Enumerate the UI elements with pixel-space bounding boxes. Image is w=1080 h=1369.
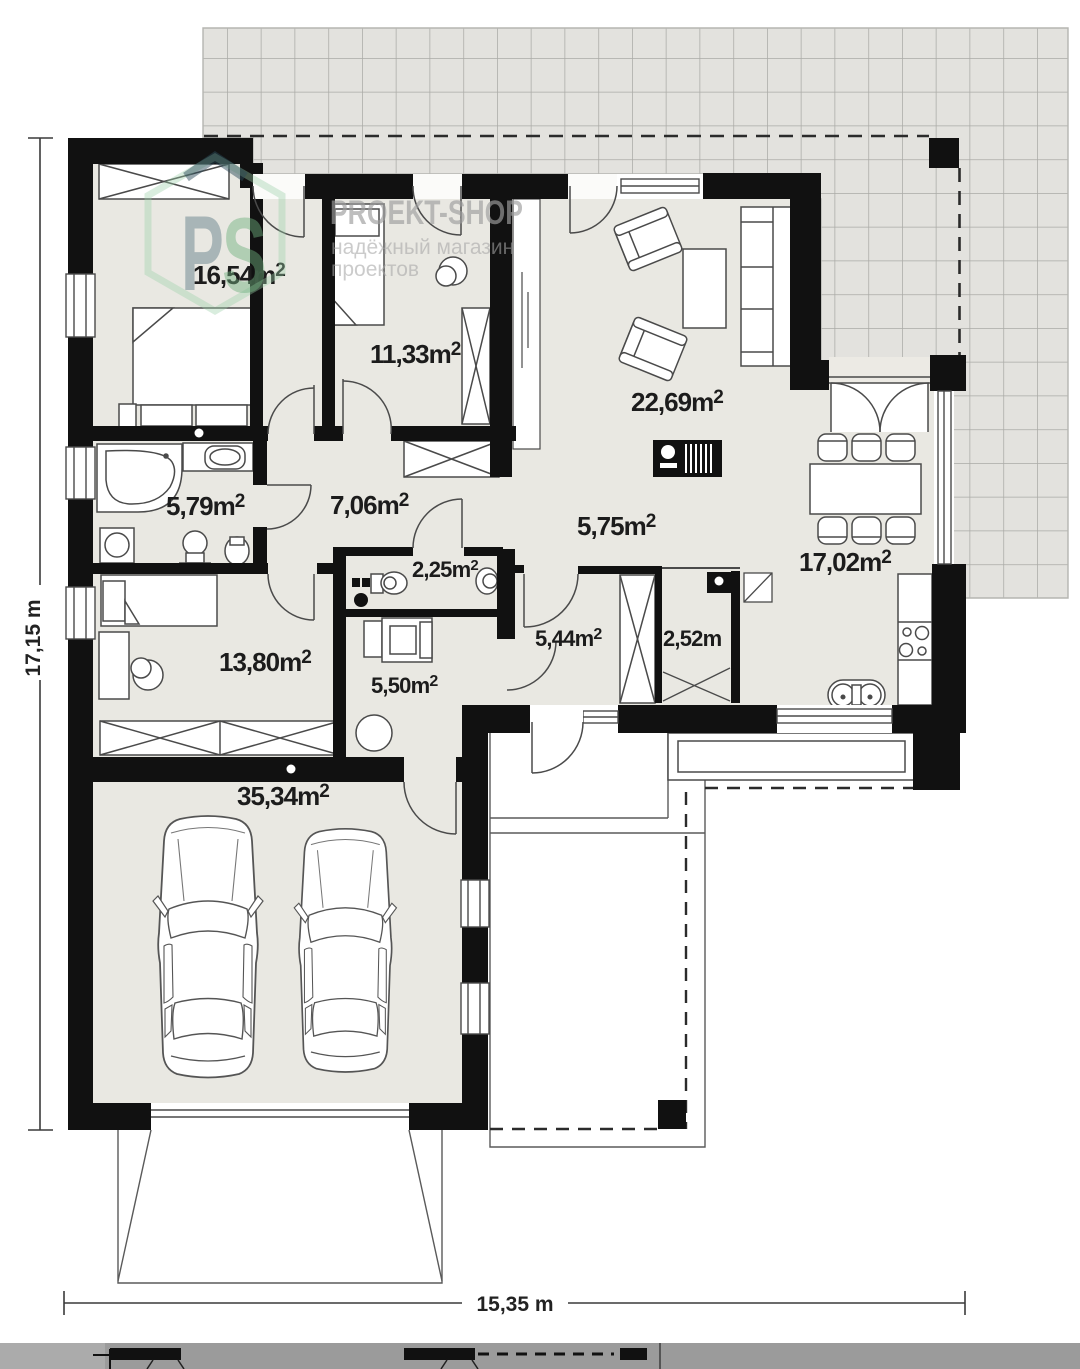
svg-text:S: S xyxy=(222,195,267,315)
svg-text:2,25m2: 2,25m2 xyxy=(412,557,478,582)
svg-text:проектов: проектов xyxy=(331,258,419,281)
svg-text:2,52m: 2,52m xyxy=(663,626,722,651)
svg-text:15,35 m: 15,35 m xyxy=(476,1293,553,1316)
svg-text:35,34m2: 35,34m2 xyxy=(237,781,329,811)
svg-text:17,02m2: 17,02m2 xyxy=(799,547,891,577)
svg-text:22,69m2: 22,69m2 xyxy=(631,387,723,417)
svg-text:надёжный магазин: надёжный магазин xyxy=(331,236,514,259)
svg-text:5,50m2: 5,50m2 xyxy=(371,673,438,698)
svg-text:13,80m2: 13,80m2 xyxy=(219,647,311,677)
svg-text:5,44m2: 5,44m2 xyxy=(535,626,602,651)
svg-text:5,75m2: 5,75m2 xyxy=(577,511,656,541)
svg-text:5,79m2: 5,79m2 xyxy=(166,491,245,521)
svg-text:7,06m2: 7,06m2 xyxy=(330,490,409,520)
svg-text:11,33m2: 11,33m2 xyxy=(370,339,461,369)
svg-text:P: P xyxy=(181,193,224,313)
svg-text:PROEKT-SHOP: PROEKT-SHOP xyxy=(330,194,523,232)
svg-text:17,15 m: 17,15 m xyxy=(22,599,45,676)
